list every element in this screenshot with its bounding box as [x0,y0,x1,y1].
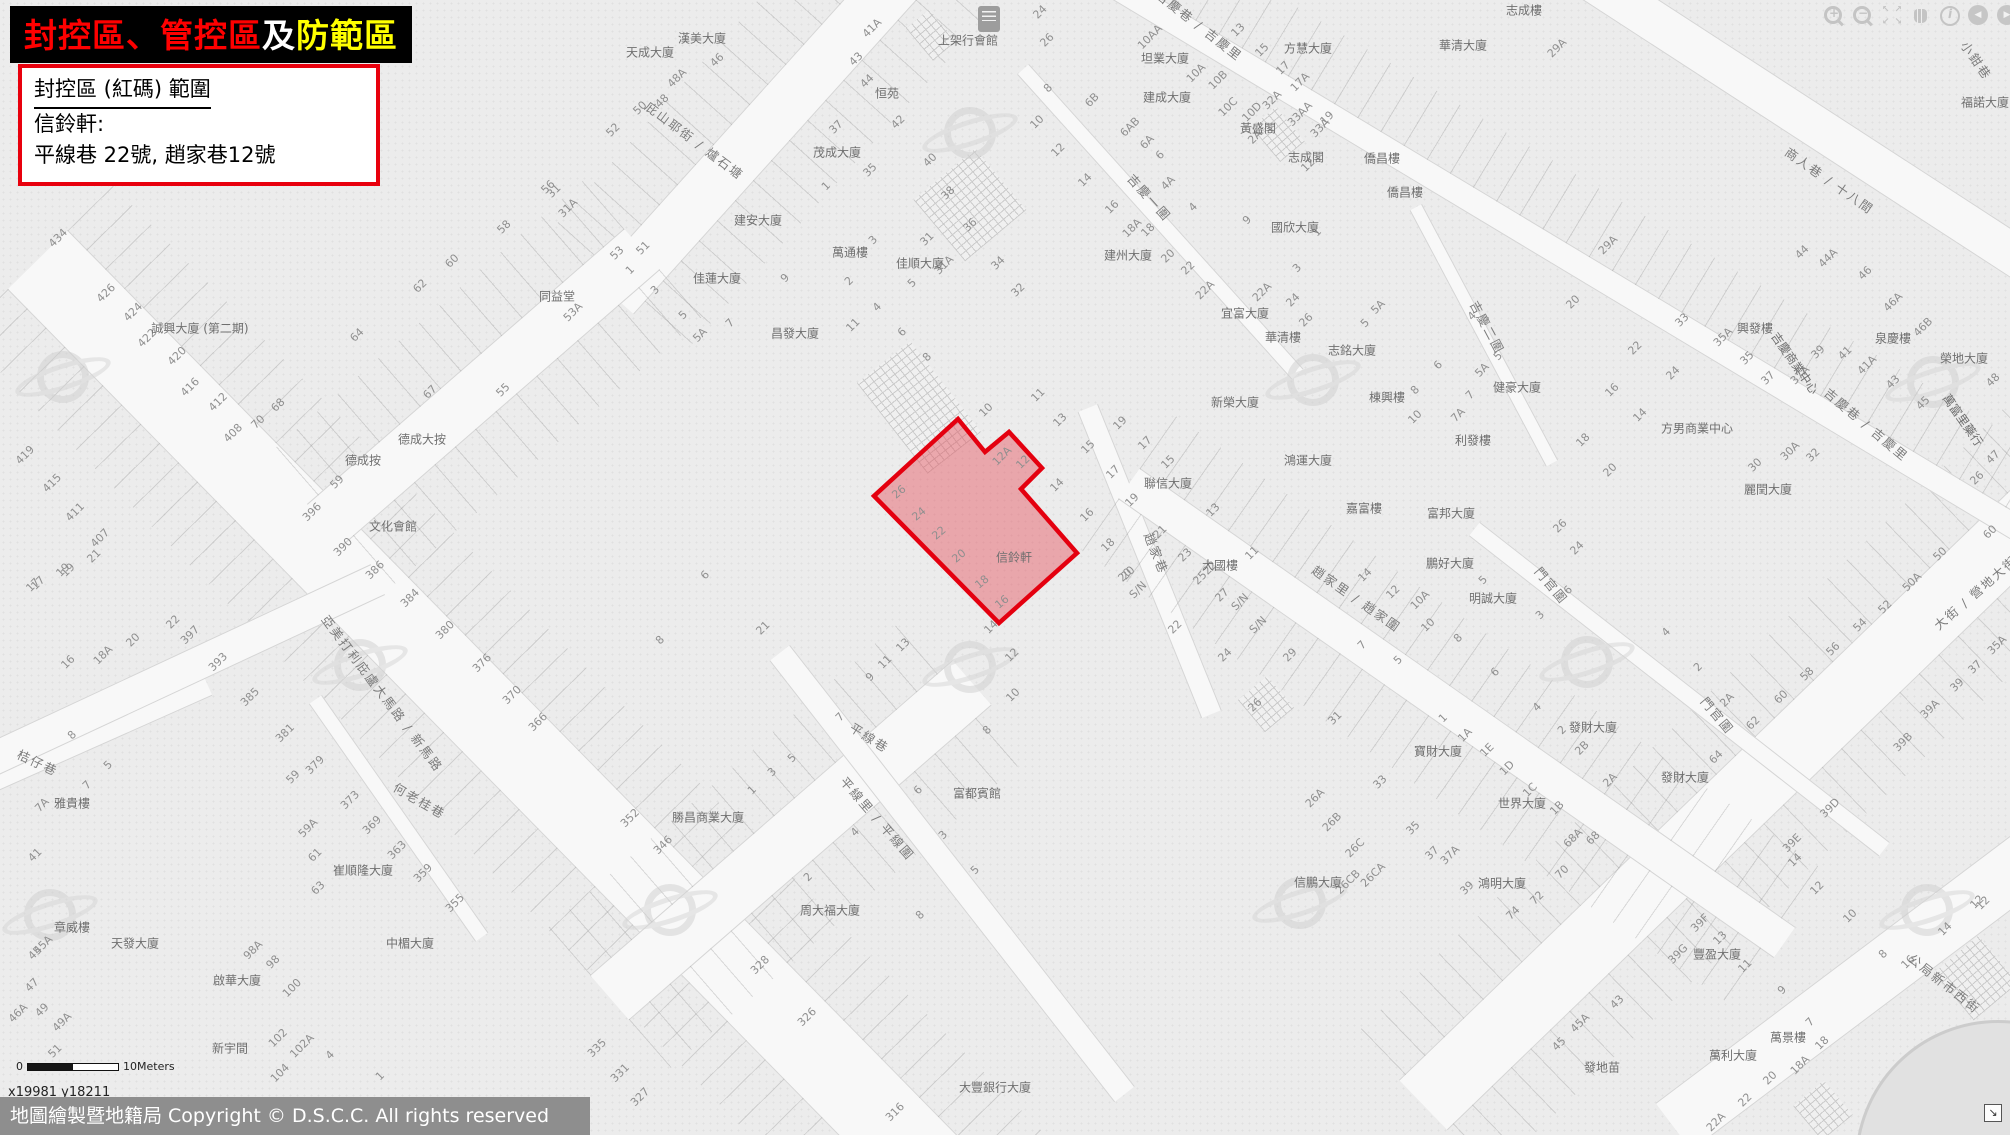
pan-button[interactable] [1909,4,1933,28]
map-number-label: 12A [990,444,1014,468]
map-number-label: 34 [988,253,1007,272]
map-building-label: 寶財大廈 [1414,743,1462,760]
map-number-label: 20 [1563,292,1582,311]
map-building-label: 德成大按 [398,431,446,448]
map-number-label: 14 [981,617,1000,636]
map-number-label: 22 [929,524,948,543]
map-number-label: 39 [1457,878,1476,897]
scale-bar: 010Meters [16,1060,175,1073]
map-number-label: 16 [58,652,77,671]
map-number-label: 22A [1250,280,1274,304]
map-building-label: 新榮大廈 [1211,394,1259,411]
map-number-label: 26 [1037,30,1056,49]
dscc-watermark-icon [938,101,1002,165]
map-building-label: 坦業大廈 [1141,50,1189,67]
map-building-label: 建成大廈 [1143,89,1191,106]
map-number-label: 31 [917,229,936,248]
map-building-label: 泉慶樓 [1875,330,1911,347]
map-building-label: 方慧大廈 [1284,40,1332,57]
map-number-label: 18 [1573,430,1592,449]
map-number-label: 20 [1600,460,1619,479]
map-number-label: 10AA [1135,22,1165,52]
map-number-label: 6A [1137,132,1156,151]
scale-end: 10Meters [123,1060,175,1073]
map-building-label: 豐盈大廈 [1693,946,1741,963]
map-number-label: 26C [1343,836,1368,861]
map-number-label: 62 [410,276,429,295]
title-white: 及 [262,16,296,55]
map-building-label: 嘉富樓 [1346,500,1382,517]
map-number-label: 30 [1745,455,1764,474]
map-number-label: 30A [1778,439,1802,463]
map-number-label: 26CA [1358,860,1388,890]
map-building-label: 大國樓 [1202,557,1238,574]
map-number-label: 10 [1027,112,1046,131]
dscc-watermark-icon [938,635,1002,699]
map-building-label: 萬景樓 [1770,1029,1806,1046]
map-building-label: 建安大廈 [734,212,782,229]
map-building-label: 華清樓 [1265,329,1301,346]
map-building-label: 中楣大廈 [386,935,434,952]
map-building-label: 信鈴軒 [996,549,1032,566]
map-number-label: 4A [1158,173,1177,192]
next-extent-button[interactable]: ▶ [1996,4,2010,28]
map-number-label: 61 [305,845,324,864]
map-building-label: 榮地大廈 [1940,350,1988,367]
closure-zone-shape [874,419,1077,623]
map-number-label: 100 [280,976,304,1000]
map-building-label: 僑昌樓 [1387,184,1423,201]
zoom-in-button[interactable]: + [1822,4,1846,28]
map-number-label: 46A [6,1001,30,1025]
map-number-label: 98 [263,952,282,971]
scale-start: 0 [16,1060,23,1073]
map-number-label: 10C [1216,95,1241,120]
map-number-label: 58 [494,217,513,236]
map-building-label: 大豐銀行大廈 [959,1079,1031,1096]
map-number-label: 407 [88,526,112,550]
map-building-label: 健豪大廈 [1493,379,1541,396]
map-number-label: 9 [778,271,792,285]
map-number-label: 7A [32,795,51,814]
map-number-label: 3 [866,233,880,247]
map-number-label: 6 [698,568,712,582]
map-building-label: 天成大廈 [626,44,674,61]
map-number-label: 3 [1533,608,1547,622]
map-number-label: 12 [1013,452,1032,471]
map-number-label: 49A [50,1010,74,1034]
map-building-label: 富邦大廈 [1427,505,1475,522]
dscc-watermark-icon [1555,630,1619,694]
map-number-label: 8 [913,908,927,922]
map-number-label: 24 [1030,2,1049,21]
map-number-label: 51 [45,1041,64,1060]
map-number-label: 26B [1320,810,1344,834]
map-number-label: 32 [1803,445,1822,464]
map-number-label: 24 [1283,290,1302,309]
map-building-label: 僑昌樓 [1364,150,1400,167]
map-building-label: 同益堂 [539,288,575,305]
map-building-label: 華清大廈 [1439,37,1487,54]
map-number-label: 59A [296,816,320,840]
map-building-label: 富都賓館 [953,785,1001,802]
map-building-label: 發財大廈 [1661,769,1709,786]
map-building-label: 章威樓 [54,919,90,936]
map-building-label: 天發大廈 [111,935,159,952]
title-banner: 封控區、管控區及防範區 [10,6,412,63]
map-number-label: 32 [1008,280,1027,299]
map-number-label: 26 [1550,516,1569,535]
map-building-label: 佳順大廈 [896,255,944,272]
map-number-label: 381 [273,721,297,745]
map-number-label: 5 [1476,573,1490,587]
scale-bar-graphic [27,1063,119,1071]
map-number-label: 47 [22,975,41,994]
map-building-label: 志成閣 [1288,149,1324,166]
map-number-label: 98A [241,938,265,962]
map-number-label: 19 [1110,413,1129,432]
map-number-label: 10B [1206,68,1230,92]
map-number-label: 7 [723,316,737,330]
map-number-label: 5 [101,758,115,772]
map-number-label: 9 [1775,983,1789,997]
map-building-label: 上架行會館 [938,32,998,49]
map-number-label: 8 [653,633,667,647]
map-number-label: 44A [1816,246,1840,270]
map-number-label: 335 [585,1036,609,1060]
map-number-label: 2 [842,274,856,288]
map-number-label: 16 [1077,505,1096,524]
map-number-label: 37A [1438,843,1462,867]
map-number-label: 327 [628,1085,652,1109]
map-building-label: 昌發大廈 [771,325,819,342]
map-number-label: 35 [1403,818,1422,837]
map-number-label: 102 [266,1026,290,1050]
map-building-label: 啟華大廈 [213,972,261,989]
map-number-label: 22 [1625,338,1644,357]
title-yellow: 防範區 [296,16,398,55]
map-number-label: 14 [1047,475,1066,494]
map-number-label: 18 [972,573,991,592]
map-number-label: 52 [603,120,622,139]
map-number-label: 7 [80,778,94,792]
map-number-label: 8 [1408,383,1422,397]
map-number-label: 26 [889,483,908,502]
map-number-label: 40 [920,150,939,169]
identify-button[interactable]: i [1938,4,1962,28]
map-number-label: 24 [1663,363,1682,382]
map-number-label: 10 [976,400,995,419]
map-number-label: 21 [84,546,103,565]
map-number-label: 10 [1003,685,1022,704]
map-building-label: 周大福大廈 [800,902,860,919]
map-number-label: 49 [32,1000,51,1019]
map-building-label: 棟興樓 [1369,389,1405,406]
map-number-label: 18A [91,643,115,667]
map-number-label: 7 [1463,388,1477,402]
title-red: 封控區、管控區 [24,16,262,55]
map-number-label: 4 [323,1048,337,1062]
info-line-address: 平線巷 22號, 趙家巷12號 [34,140,364,172]
map-number-label: 379 [303,753,327,777]
map-building-label: 國欣大廈 [1271,219,1319,236]
map-number-label: 59 [283,767,302,786]
map-number-label: 10 [1405,407,1424,426]
map-number-label: 102A [287,1031,316,1060]
map-building-label: 誠興大廈 (第二期) [151,320,248,337]
map-number-label: 5 [905,276,919,290]
map-number-label: 41 [25,845,44,864]
map-building-label: 建州大廈 [1104,247,1152,264]
road-rua-camilo-pessanha-lower [307,228,660,545]
map-building-label: 萬通樓 [832,244,868,261]
map-number-label: 104 [268,1061,292,1085]
map-number-label: 4 [1186,200,1200,214]
info-heading: 封控區 (紅碼) 範圍 [34,74,211,109]
map-building-label: 利發樓 [1455,432,1491,449]
map-building-label: 萬利大廈 [1709,1047,1757,1064]
closure-info-box: 封控區 (紅碼) 範圍 信鈴軒: 平線巷 22號, 趙家巷12號 [18,64,380,186]
map-building-label: 黃盛閣 [1240,120,1276,137]
map-number-label: 44 [1792,242,1811,261]
map-building-label: 勝昌商業大廈 [672,809,744,826]
map-number-label: 2 [1691,660,1705,674]
map-number-label: 5A [1368,297,1387,316]
map-number-label: 4 [870,300,884,314]
map-building-label: 世界大廈 [1498,795,1546,812]
map-number-label: 16 [1102,197,1121,216]
map-building-label: 明誠大廈 [1469,590,1517,607]
map-number-label: 26A [1303,786,1327,810]
map-building-label: 發財大廈 [1569,719,1617,736]
dscc-watermark-icon [31,345,95,409]
map-number-label: 1 [373,1069,387,1083]
map-viewport[interactable]: 5256586062646870504848A46535153A1355A792… [0,0,2010,1135]
map-building-label: 漢美大廈 [678,30,726,47]
map-number-label: 14 [1630,405,1649,424]
map-street-label: 小鉗巷 [1957,37,1998,84]
map-number-label: 415 [40,471,64,495]
map-number-label: 13 [1050,410,1069,429]
construction-hatch [857,341,981,473]
map-number-label: 14 [1075,170,1094,189]
map-number-label: 20 [949,547,968,566]
map-number-label: 20 [123,630,142,649]
map-building-label: 方男商業中心 [1661,420,1733,437]
map-building-label: 新宇間 [212,1040,248,1057]
map-number-label: 48 [1983,370,2002,389]
map-number-label: 6 [1153,148,1167,162]
map-building-label: 興發樓 [1737,320,1773,337]
map-toolbar: +−↖↗↙↘i◀▶ [1822,4,2010,28]
map-number-label: 11 [843,315,862,334]
map-number-label: 35 [860,160,879,179]
map-number-label: 385 [238,685,262,709]
map-number-label: 6 [1431,358,1445,372]
map-number-label: 46 [1855,263,1874,282]
map-number-label: 411 [63,500,87,524]
map-number-label: 6 [895,325,909,339]
map-building-label: 文化會館 [369,518,417,535]
map-building-label: 福諾大廈 [1961,94,2009,111]
map-number-label: 63 [308,878,327,897]
map-number-label: 64 [347,325,366,344]
guild-hall-icon [978,6,1000,32]
map-building-label: 鴻明大廈 [1478,875,1526,892]
map-number-label: 46B [1911,315,1935,339]
resize-handle-icon[interactable]: ↘ [1984,1104,2002,1122]
map-building-label: 志成樓 [1506,2,1542,19]
map-number-label: 331 [608,1061,632,1085]
map-number-label: 33 [1370,772,1389,791]
map-number-label: 6B [1082,90,1101,109]
map-number-label: 10 [1840,906,1859,925]
map-number-label: 5 [1358,316,1372,330]
map-building-label: 恒苑 [875,85,899,102]
map-number-label: 24 [1567,538,1586,557]
map-number-label: 26 [1296,310,1315,329]
map-number-label: 21 [753,618,772,637]
map-building-label: 佳蓮大廈 [693,270,741,287]
map-building-label: 聯信大廈 [1144,475,1192,492]
map-building-label: 麗閏大廈 [1744,481,1792,498]
map-number-label: 60 [442,251,461,270]
map-building-label: 鵬好大廈 [1426,555,1474,572]
map-number-label: 12 [1048,140,1067,159]
map-building-label: 德成按 [345,452,381,469]
info-line-building: 信鈴軒: [34,109,364,141]
map-building-label: 鴻運大廈 [1284,452,1332,469]
dscc-watermark-icon [638,878,702,942]
map-number-label: 3 [1290,261,1304,275]
map-number-label: 46A [1881,290,1905,314]
map-number-label: 9 [1240,213,1254,227]
map-building-label: 宜富大廈 [1221,305,1269,322]
map-building-label: 志銘大廈 [1328,342,1376,359]
map-building-label: 茂成大廈 [813,144,861,161]
map-number-label: 6AB [1118,115,1143,140]
map-number-label: 16 [1602,380,1621,399]
map-building-label: 雅貴樓 [54,795,90,812]
map-number-label: 29A [1545,36,1569,60]
map-building-label: 崔順隆大廈 [333,862,393,879]
full-extent-button[interactable]: ↖↗↙↘ [1880,4,1904,28]
previous-extent-button[interactable]: ◀ [1967,4,1991,28]
map-number-label: 373 [338,788,362,812]
map-number-label: 24 [909,505,928,524]
zoom-out-button[interactable]: − [1851,4,1875,28]
map-number-label: 7A [1448,405,1467,424]
map-number-label: 369 [360,813,384,837]
map-number-label: 4 [1659,625,1673,639]
map-number-label: 22 [163,612,182,631]
map-number-label: 11 [1028,385,1047,404]
map-building-label: 發地苗 [1584,1059,1620,1076]
map-number-label: 5A [1472,360,1491,379]
map-building-label: 信鵬大廈 [1294,874,1342,891]
map-number-label: 419 [13,443,37,467]
map-number-label: 16 [992,593,1011,612]
copyright-bar: 地圖繪製暨地籍局 Copyright © D.S.C.C. All rights… [0,1097,590,1135]
construction-hatch [1793,1080,1853,1135]
